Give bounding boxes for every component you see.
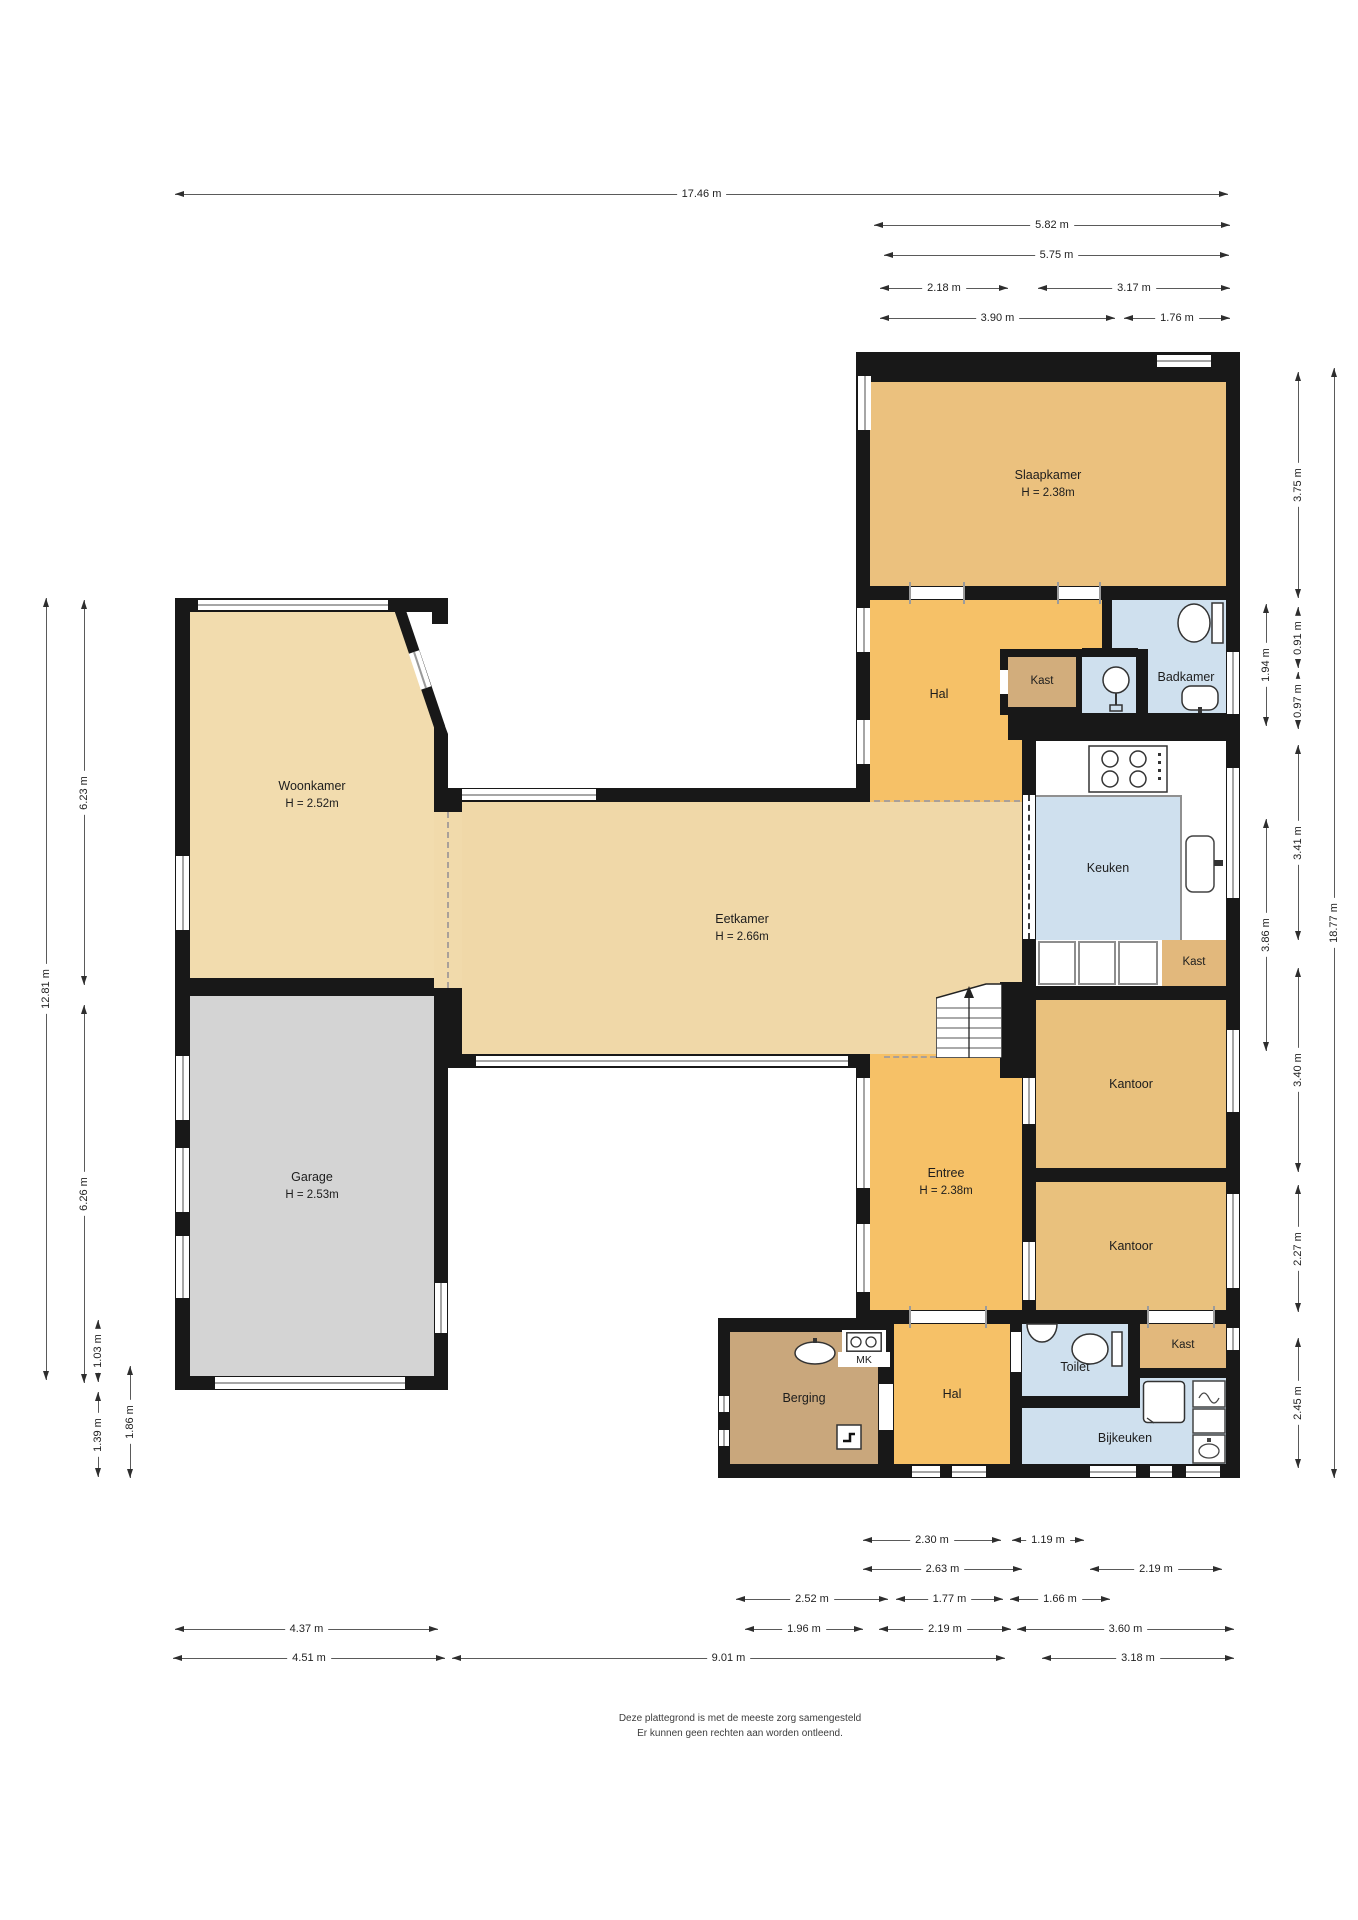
room-label-keuken: Keuken — [1087, 859, 1129, 878]
kitchen-cabinet — [1118, 941, 1158, 985]
window — [435, 1283, 447, 1333]
window — [857, 608, 870, 652]
room-height-garage: H = 2.53m — [285, 1187, 338, 1204]
door-opening — [1058, 587, 1100, 599]
dim-right-5: 3.41 m — [1298, 745, 1299, 940]
door-tick — [1147, 1306, 1149, 1328]
room-kast-beneden: Kast — [1140, 1324, 1226, 1368]
wall-stairs-side — [1000, 982, 1022, 1078]
dim-top-1: 5.82 m — [874, 225, 1230, 226]
door-kast-badkamer — [1000, 670, 1008, 694]
room-label-eetkamer: Eetkamer — [715, 910, 769, 929]
window — [1227, 1194, 1239, 1288]
dim-left-5: 1.86 m — [130, 1366, 131, 1478]
meter-box-icon — [846, 1332, 882, 1352]
room-garage: Garage H = 2.53m — [190, 996, 434, 1376]
window — [952, 1466, 986, 1477]
window — [1227, 768, 1239, 898]
shower-icon — [1094, 664, 1138, 714]
door-tick — [985, 1306, 987, 1328]
dim-top-4: 3.17 m — [1038, 288, 1230, 289]
room-kantoor-boven: Kantoor — [1036, 1000, 1226, 1168]
tap-icon — [836, 1424, 862, 1450]
window — [912, 1466, 940, 1477]
bathroom-sink-icon — [1178, 684, 1222, 714]
dim-right-7: 3.40 m — [1298, 968, 1299, 1172]
room-slaapkamer: Slaapkamer H = 2.38m — [870, 382, 1226, 586]
window — [1227, 1030, 1239, 1112]
window — [476, 1056, 848, 1066]
dim-bottom-9: 2.19 m — [879, 1629, 1011, 1630]
window — [176, 1236, 189, 1298]
dim-bottom-11: 4.51 m — [173, 1658, 445, 1659]
room-label-mk: MK — [838, 1352, 890, 1367]
floorplan-canvas: Slaapkamer H = 2.38m Hal Kast Badkamer K… — [0, 0, 1358, 1920]
room-label-hal-boven: Hal — [930, 685, 949, 704]
dim-top-0: 17.46 m — [175, 194, 1228, 195]
window — [719, 1430, 729, 1446]
angled-wall-woonkamer — [392, 594, 448, 746]
door-opening — [910, 587, 964, 599]
window — [858, 376, 871, 430]
window — [857, 1224, 870, 1292]
kitchen-sink-icon — [1184, 832, 1226, 896]
window — [1186, 1466, 1220, 1477]
garage-door — [215, 1377, 405, 1389]
room-entree: Entree H = 2.38m — [870, 1054, 1022, 1310]
dim-bottom-10: 3.60 m — [1017, 1629, 1234, 1630]
room-label-kast-badkamer: Kast — [1030, 673, 1053, 690]
door-tick — [1099, 582, 1101, 604]
room-hal-boven-top — [870, 600, 1104, 650]
dim-left-1: 6.23 m — [84, 600, 85, 985]
dim-bottom-1: 1.19 m — [1012, 1540, 1084, 1541]
room-height-entree: H = 2.38m — [919, 1183, 972, 1200]
dim-top-2: 5.75 m — [884, 255, 1229, 256]
disclaimer-line1: Deze plattegrond is met de meeste zorg s… — [390, 1712, 1090, 1727]
dim-right-8: 2.27 m — [1298, 1185, 1299, 1312]
dim-right-3: 0.91 m — [1298, 607, 1299, 668]
dim-right-0: 18.77 m — [1334, 368, 1335, 1478]
room-hal-boven: Hal — [870, 648, 1008, 740]
window — [719, 1396, 729, 1412]
hand-sink-icon — [1024, 1322, 1060, 1344]
room-height-woonkamer: H = 2.52m — [285, 796, 338, 813]
dim-right-4: 0.97 m — [1298, 672, 1299, 729]
dim-right-9: 2.45 m — [1298, 1338, 1299, 1468]
window — [176, 1148, 189, 1212]
window — [857, 720, 870, 764]
room-kast-badkamer: Kast — [1008, 657, 1076, 707]
kitchen-cabinet — [1078, 941, 1116, 985]
dim-bottom-0: 2.30 m — [863, 1540, 1001, 1541]
dim-top-3: 2.18 m — [880, 288, 1008, 289]
door-opening — [1148, 1311, 1214, 1323]
door-tick — [1213, 1306, 1215, 1328]
room-label-slaapkamer: Slaapkamer — [1015, 466, 1082, 485]
room-label-kast-beneden: Kast — [1171, 1337, 1194, 1354]
dim-bottom-4: 2.52 m — [736, 1599, 888, 1600]
dim-bottom-13: 3.18 m — [1042, 1658, 1234, 1659]
dim-top-6: 1.76 m — [1124, 318, 1230, 319]
window — [1227, 652, 1239, 714]
room-label-woonkamer: Woonkamer — [278, 777, 345, 796]
room-label-bijkeuken: Bijkeuken — [1060, 1428, 1190, 1448]
toilet-icon — [1174, 600, 1226, 646]
room-hal-boven-low — [870, 740, 1022, 802]
open-boundary — [884, 1056, 936, 1058]
dim-left-4: 1.39 m — [98, 1392, 99, 1477]
dim-bottom-5: 1.77 m — [896, 1599, 1003, 1600]
door-opening — [879, 1384, 893, 1430]
room-label-garage: Garage — [291, 1168, 333, 1187]
washer-icon — [1142, 1380, 1186, 1424]
dim-left-3: 1.03 m — [98, 1320, 99, 1382]
wall-shower-top — [1082, 648, 1138, 657]
dim-bottom-3: 2.19 m — [1090, 1569, 1222, 1570]
window — [176, 856, 189, 930]
dim-top-5: 3.90 m — [880, 318, 1115, 319]
door-opening — [910, 1311, 986, 1323]
window — [1090, 1466, 1136, 1477]
disclaimer: Deze plattegrond is met de meeste zorg s… — [390, 1712, 1090, 1741]
wall-hal-badkamer — [1102, 600, 1112, 650]
window — [198, 600, 388, 610]
window — [1157, 355, 1211, 367]
dim-right-2: 1.94 m — [1266, 604, 1267, 726]
room-label-kantoor-onder: Kantoor — [1109, 1237, 1153, 1256]
disclaimer-line2: Er kunnen geen rechten aan worden ontlee… — [390, 1727, 1090, 1742]
door-tick — [1057, 582, 1059, 604]
toilet-icon — [1066, 1328, 1126, 1372]
dim-bottom-2: 2.63 m — [863, 1569, 1022, 1570]
window — [1227, 1328, 1239, 1350]
room-label-hal-beneden: Hal — [943, 1385, 962, 1404]
door-opening — [1011, 1332, 1021, 1372]
open-boundary — [1028, 795, 1030, 939]
stairs-up-icon — [936, 982, 1002, 1058]
room-kast-keuken: Kast — [1162, 940, 1226, 986]
dim-right-1: 3.75 m — [1298, 372, 1299, 598]
door-tick — [909, 1306, 911, 1328]
room-label-entree: Entree — [928, 1164, 965, 1183]
room-hal-beneden: Hal — [894, 1324, 1010, 1464]
stove-icon — [1088, 745, 1174, 793]
dim-bottom-8: 1.96 m — [745, 1629, 863, 1630]
dim-left-0: 12.81 m — [46, 598, 47, 1380]
room-kantoor-onder: Kantoor — [1036, 1182, 1226, 1310]
room-label-berging: Berging — [782, 1389, 825, 1408]
window — [1150, 1466, 1172, 1477]
door-opening — [1023, 1078, 1035, 1124]
window — [176, 1056, 189, 1120]
dim-bottom-12: 9.01 m — [452, 1658, 1005, 1659]
door-tick — [963, 582, 965, 604]
dim-left-2: 6.26 m — [84, 1005, 85, 1383]
open-boundary — [447, 812, 449, 988]
room-label-kast-keuken: Kast — [1182, 954, 1205, 971]
door-opening — [1023, 1242, 1035, 1300]
berging-sink-icon — [792, 1338, 838, 1366]
room-label-kantoor-boven: Kantoor — [1109, 1075, 1153, 1094]
kitchen-cabinet — [1038, 941, 1076, 985]
room-height-slaapkamer: H = 2.38m — [1021, 485, 1074, 502]
window — [857, 1078, 870, 1188]
window — [462, 789, 596, 800]
room-keuken: Keuken — [1036, 795, 1182, 940]
room-height-eetkamer: H = 2.66m — [715, 929, 768, 946]
dim-bottom-7: 4.37 m — [175, 1629, 438, 1630]
dim-bottom-6: 1.66 m — [1010, 1599, 1110, 1600]
door-tick — [909, 582, 911, 604]
utility-appliances — [1192, 1380, 1226, 1464]
dim-right-6: 3.86 m — [1266, 819, 1267, 1051]
open-boundary — [874, 800, 1020, 802]
